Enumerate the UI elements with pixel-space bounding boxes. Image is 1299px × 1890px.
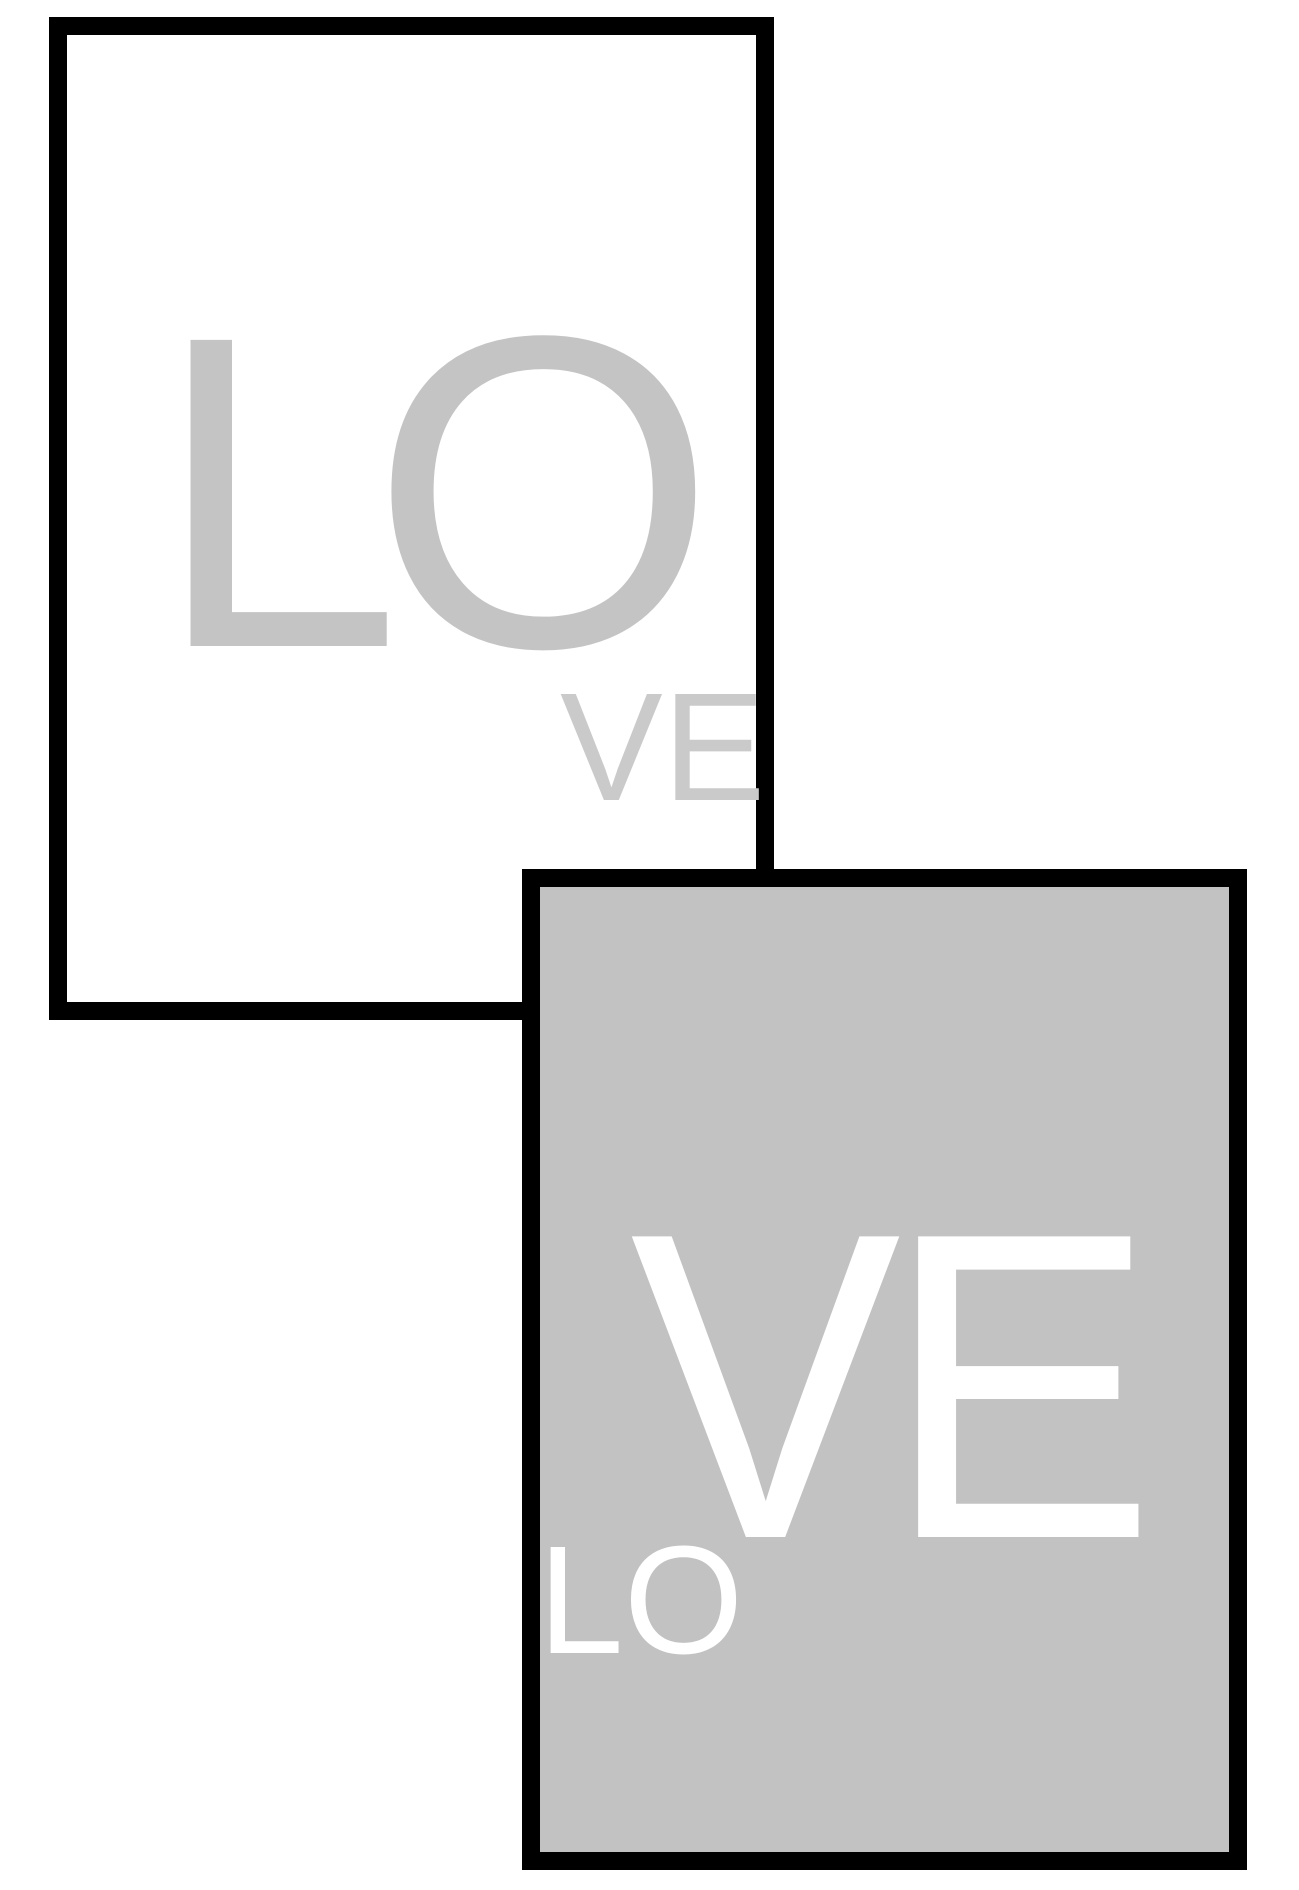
white-poster-small-text: VE [560, 670, 765, 824]
gray-poster-small-text: LO [538, 1523, 743, 1677]
white-poster-big-text: LO [154, 270, 685, 715]
poster-mockup-scene: LO VE VE LO [0, 0, 1299, 1890]
gray-love-poster: VE LO [522, 869, 1247, 1870]
